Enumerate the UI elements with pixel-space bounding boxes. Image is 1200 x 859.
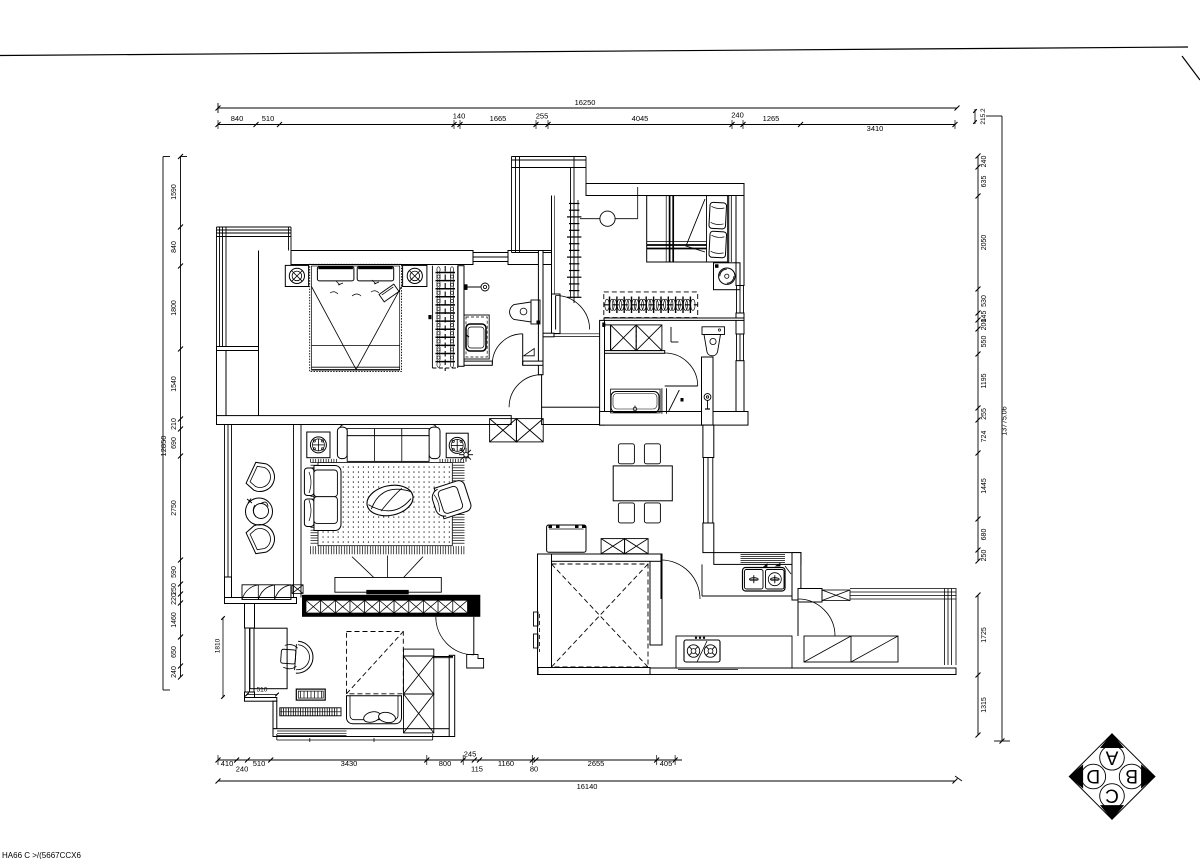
svg-text:4045: 4045 [632, 114, 649, 123]
svg-text:240: 240 [236, 765, 249, 774]
svg-text:210: 210 [171, 418, 178, 430]
svg-text:724: 724 [981, 431, 988, 443]
svg-text:255: 255 [981, 408, 988, 420]
svg-text:840: 840 [171, 241, 178, 253]
svg-text:240: 240 [171, 666, 178, 678]
svg-text:1195: 1195 [981, 373, 988, 388]
svg-text:220: 220 [171, 593, 178, 605]
svg-text:1725: 1725 [981, 627, 988, 643]
svg-text:16140: 16140 [577, 782, 598, 791]
svg-text:635: 635 [981, 176, 988, 188]
svg-text:80: 80 [530, 765, 538, 774]
svg-text:215.2: 215.2 [980, 108, 987, 125]
svg-text:B: B [1125, 765, 1138, 786]
svg-text:1160: 1160 [498, 759, 514, 768]
svg-text:3430: 3430 [341, 759, 358, 768]
svg-text:2655: 2655 [588, 759, 605, 768]
svg-text:16250: 16250 [575, 98, 596, 107]
svg-text:800: 800 [439, 759, 452, 768]
svg-text:HA66 C >/(5667CCX6: HA66 C >/(5667CCX6 [2, 851, 81, 859]
svg-text:115: 115 [471, 765, 483, 774]
svg-text:1665: 1665 [490, 114, 507, 123]
svg-text:510: 510 [253, 759, 266, 768]
svg-text:12850: 12850 [159, 436, 168, 457]
svg-text:D: D [1086, 765, 1100, 786]
svg-text:240: 240 [731, 111, 744, 120]
svg-text:240: 240 [981, 156, 988, 168]
svg-text:A: A [1105, 746, 1118, 767]
svg-text:1540: 1540 [171, 376, 178, 392]
svg-text:510: 510 [262, 114, 275, 123]
svg-text:690: 690 [171, 437, 178, 449]
svg-text:510: 510 [257, 687, 268, 694]
svg-text:550: 550 [981, 336, 988, 348]
svg-text:405: 405 [660, 759, 673, 768]
svg-text:680: 680 [981, 529, 988, 541]
svg-text:140: 140 [453, 112, 466, 121]
svg-text:250: 250 [981, 550, 988, 562]
svg-text:1315: 1315 [981, 697, 988, 713]
svg-text:1265: 1265 [763, 114, 780, 123]
svg-text:2050: 2050 [981, 235, 988, 251]
svg-text:250: 250 [171, 583, 178, 595]
svg-text:2750: 2750 [171, 500, 178, 516]
svg-text:840: 840 [231, 114, 244, 123]
svg-text:1810: 1810 [215, 638, 222, 653]
svg-text:590: 590 [171, 566, 178, 578]
svg-text:13775.06: 13775.06 [1002, 406, 1009, 435]
svg-text:410: 410 [221, 759, 234, 768]
svg-text:200: 200 [981, 319, 988, 331]
svg-text:1590: 1590 [171, 184, 178, 200]
svg-text:530: 530 [981, 295, 988, 307]
svg-text:650: 650 [171, 646, 178, 658]
svg-text:C: C [1105, 785, 1119, 806]
svg-text:255: 255 [536, 112, 549, 121]
svg-text:1800: 1800 [171, 300, 178, 316]
svg-text:1445: 1445 [981, 478, 988, 494]
svg-text:245: 245 [464, 750, 477, 759]
svg-text:3410: 3410 [867, 124, 884, 133]
svg-text:1460: 1460 [171, 612, 178, 628]
